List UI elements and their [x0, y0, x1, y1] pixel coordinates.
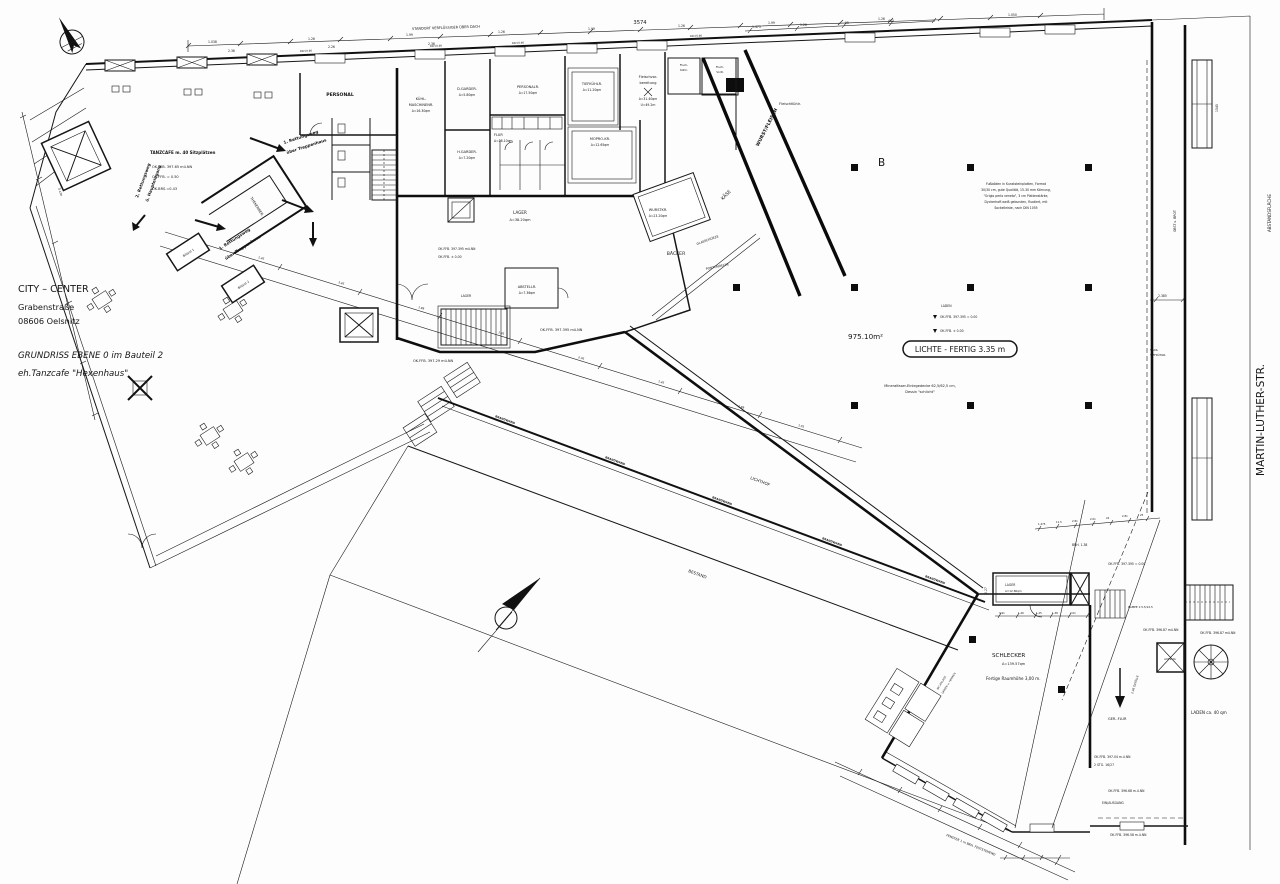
window-sill-label: BRH.0.90	[430, 44, 443, 48]
window-x	[105, 54, 277, 71]
wc-cluster	[865, 668, 941, 746]
dim-label: 1.99	[768, 21, 775, 25]
entrance-doors	[128, 284, 428, 548]
room-lager-s-area: A=12.80qm	[1005, 589, 1022, 593]
project-street: Grabenstraße	[18, 302, 74, 312]
skylight-x-icon	[128, 376, 152, 400]
window-sill-label: BRH.0.90	[300, 49, 313, 53]
room-dgarder-area: A=5.80qm	[459, 93, 476, 97]
ramp-stairs	[1095, 590, 1125, 618]
dim-label: 3.26	[338, 280, 345, 286]
dim-label: 2.26	[328, 45, 335, 49]
dim-label: 1.26	[498, 30, 505, 34]
room-abstellr-area: A=7.36qm	[519, 291, 536, 295]
zone-lichthof: LICHTHOF	[750, 475, 772, 487]
room-fleischkuehl: FleischKühlr.	[779, 102, 801, 106]
street-name: MARTIN-LUTHER-STR.	[1255, 364, 1267, 476]
dim-label: 2.36	[228, 49, 235, 53]
room-lager-big: LAGER	[513, 210, 527, 215]
dim-label: 2.01	[1090, 517, 1096, 521]
room-lager-big-area: A=38.20qm	[510, 218, 532, 222]
hall-area: 975.10m²	[848, 332, 883, 341]
dim-label: 1.038	[208, 40, 217, 44]
room-hgarder: H.GARDER.	[457, 150, 477, 154]
dim-label: 1.99	[418, 305, 425, 311]
zone-kaese: KÄSE	[719, 188, 732, 201]
dim-label: 1.26	[800, 23, 807, 27]
ponton-ceiling-label: PONTONDECKE	[705, 262, 729, 271]
dim-label: 2.27	[984, 587, 988, 594]
dim-total: 3574	[633, 20, 647, 26]
room-tiefkuehl-area: A=11.20qm	[583, 88, 602, 92]
skylight-shaft	[41, 121, 110, 190]
wurst-cold-room	[633, 173, 710, 242]
lichthof-bestand: BRANDWAND BRANDWAND BRANDWAND BRANDWAND …	[237, 398, 1012, 884]
room-kuehlmaschine2: MASCHINENR.	[409, 103, 434, 107]
level-label: OK.FFB. 396.87 mü.NN	[1200, 631, 1236, 635]
room-lager-small: LAGER	[461, 294, 472, 298]
dim-label: 25	[1140, 513, 1144, 517]
window-sill-label: BRH.0.90	[512, 41, 525, 45]
room-fleischvorr-sm: Flsch-	[716, 65, 724, 69]
floorplan-drawing: CITY – CENTER Grabenstraße 08606 Oelsnit…	[0, 0, 1280, 884]
level-label: OK.FFB. 397.395 mü.NN	[540, 328, 583, 332]
dim-label: 11.5	[1056, 520, 1062, 524]
room-dgarder: D.GARDER.	[457, 87, 477, 91]
billard-table-2: Billard 2	[222, 265, 265, 302]
room-personalr-area: A=17.50qm	[519, 91, 538, 95]
room-theke: THEKENBER.	[249, 196, 265, 218]
dim-label: 2.81	[1072, 519, 1078, 523]
dim-label: 2.81	[1122, 514, 1128, 518]
floorplan-sheet: CITY – CENTER Grabenstraße 08606 Oelsnit…	[0, 0, 1280, 884]
aufzug-box: AUFZUG	[1157, 643, 1184, 672]
window-sill-label: BRH.0.90	[690, 34, 703, 38]
room-abstellr: ABSTELLR.	[518, 285, 537, 289]
stairwell	[372, 150, 397, 200]
zone-wurstfleisch: WURST/FLEISCH	[755, 107, 779, 147]
ceiling-note: Mineralfaser-Einlegedecke 62,5/62,5 cm,	[884, 384, 955, 388]
elevator-shaft-2	[1071, 573, 1089, 605]
window	[893, 764, 1008, 832]
north-arrow-icon	[48, 12, 88, 59]
level-label: OK.FFB. 396.68 m.ü.NN	[1108, 789, 1145, 793]
room-flur: FLUR	[494, 133, 503, 137]
room-kuehlmaschine: KÜHL-	[416, 96, 427, 101]
survey-needle-icon	[478, 578, 540, 652]
escape-label: über Treppenhaus	[224, 234, 262, 261]
ceiling-note2: Dessin "schlicht"	[905, 390, 935, 394]
room-tanzcafe: TANZCAFE m. 40 Sitzplätzen	[150, 150, 215, 155]
drawing-subtitle: eh.Tanzcafe "Hexenhaus"	[18, 369, 128, 379]
room-mopro: MOPRO-KR.	[590, 137, 610, 141]
laden-note: LADEN ca. 40 qm	[1191, 710, 1227, 715]
site-dimension-chain: 1.26 3.26 1.99 1.26 2.36 1.26 1.99 1.05	[160, 232, 862, 462]
room-fleischkuehl-sm: Flsch-	[680, 63, 688, 67]
level-label: OK.FFB. 397.395 = 0.00	[1108, 562, 1145, 566]
aufzug-label: AUFZUG	[1164, 657, 1176, 661]
skylight-hatch	[448, 198, 474, 222]
dim-label: 1545	[1215, 104, 1219, 112]
straight-stair	[1185, 585, 1233, 620]
dim-label: 1.26	[1018, 611, 1024, 615]
axis-letter: B	[878, 157, 885, 169]
dim-label: 1.26	[308, 37, 315, 41]
level-label: OK.FFB. 397.29 mü.NN	[413, 359, 454, 363]
dim-label: 1.475	[752, 25, 761, 29]
zone-bestand: BESTAND	[688, 568, 708, 579]
stair-note: 2 STG. 16/27	[1094, 763, 1114, 767]
dim-label: 1.99	[588, 27, 595, 31]
schlecker-block: LAGER A=12.80qm 3.91 1.26 1.25 1.38 2.01…	[835, 492, 1236, 880]
laden-level-label: LADEN	[941, 304, 952, 308]
drawing-title: GRUNDRISS EBENE 0 im Bauteil 2	[18, 351, 163, 361]
room-sack-tk: SACK-	[1150, 348, 1158, 352]
tanzcafe-wing: PERSONAL TANZCAFE m. 40 Sitzplätzen OK.F…	[81, 68, 583, 568]
dim-label: 95	[845, 21, 849, 25]
north-facade-wall: BRH.0.90 BRH.0.90 BRH.0.90 BRH.0.90	[86, 20, 1152, 71]
glass-apron-label: GLASSCHÜRZE	[696, 233, 720, 246]
dim-label: 24	[1106, 516, 1110, 520]
service-rooms: KÜHL- MASCHINENR. A=16.30qm D.GARDER. A=…	[397, 52, 801, 352]
clearance-note: LICHTE - FERTIG 3.35 m	[915, 345, 1005, 354]
level-label: OK.FFB. 397.04 m.ü.NN	[1094, 755, 1131, 759]
title-block: CITY – CENTER Grabenstraße 08606 Oelsnit…	[18, 284, 163, 379]
dim-label: 1.38	[1052, 611, 1058, 615]
level-label: OK.BRS.=0.43	[152, 187, 177, 191]
dim-label: 1.25	[1036, 611, 1042, 615]
level-label: OK.FFB. 397.395 = 0.00	[940, 315, 977, 319]
room-fleischkuehl-sm2: Kühlr.	[680, 68, 688, 72]
zone-obst-brot: OBST u. BROT	[1173, 210, 1177, 232]
dim-label: 1.05	[798, 423, 805, 429]
dim-label: 1.050	[1008, 13, 1017, 17]
room-tiefkuehl: TIEFKÜHLR.	[581, 81, 602, 86]
dim-label: 1.26	[258, 255, 265, 261]
room-wurstkr-area: A=23.20qm	[649, 214, 668, 218]
floor-spec3: "Grigio perla veneto", 3 cm Plattenstärk…	[984, 194, 1049, 198]
shelving	[1192, 60, 1212, 520]
room-schlecker-area: A=139.57qm	[1002, 662, 1026, 666]
floor-spec2: 30/30 cm, gute Qualität, 15-30 mm Körnun…	[981, 188, 1051, 192]
room-personalr: PERSONALR.	[517, 85, 539, 89]
dim-label: 2.385	[1158, 294, 1167, 298]
project-title: CITY – CENTER	[18, 284, 89, 295]
floor-spec4: Dyckerhoff-weiß gebunden, fluatiert, mit	[985, 200, 1049, 204]
slope-label: 2.46 GEFÄLLE	[1129, 674, 1139, 694]
room-hgarder-area: A=7.20qm	[459, 156, 476, 160]
elevator-shaft	[340, 308, 378, 342]
room-fleischvorr-sm2: VorR.	[716, 70, 723, 74]
spiral-stair	[1194, 645, 1228, 679]
floor-spec: Fußböden in Kunststeinplatten, Format	[986, 182, 1047, 186]
room-fleischvor: Fleischvor-	[639, 75, 659, 79]
dim-label: BRH. 1.38	[1072, 543, 1087, 547]
room-kuehlmaschine-area: A=16.30qm	[412, 109, 431, 113]
room-personal: PERSONAL	[326, 92, 354, 98]
window-note: FENSTER 1 m BRH. FESTSTEHEND	[946, 833, 997, 857]
dim-label: 2.01	[1070, 611, 1076, 615]
street-band: 2.385 1545 OBST u. BROT SACK- TIEFKÜHLR.…	[1149, 16, 1272, 850]
room-gerflur: GER.-FLUR	[1108, 717, 1127, 721]
room-flur-area: A=28.10qm	[494, 139, 513, 143]
zone-baecker: BÄCKER	[667, 250, 686, 257]
roof-note: STANDORT VERFLÜSSIGER ÜBER DACH	[412, 24, 481, 31]
dim-label: 1.99	[406, 33, 413, 37]
dim-label: 1.26	[678, 24, 685, 28]
dim-label: 463	[888, 19, 894, 23]
ramp-label: RAMPE 1:5,5/12,5	[1128, 605, 1153, 609]
room-fleischvor-umfang: U=49.2m	[641, 103, 656, 107]
level-label: OK.FFB. ± 0.00	[940, 329, 964, 333]
dim-label: 1.26	[878, 17, 885, 21]
dim-label: 3.91	[999, 611, 1005, 615]
room-lager-s: LAGER	[1005, 583, 1016, 587]
level-label: OK.FFB. ± 0.00	[438, 255, 462, 259]
room-schlecker: SCHLECKER	[992, 653, 1025, 659]
level-label: OK.FFB. 396.58 m.ü.NN	[1110, 833, 1147, 837]
room-height-note: Fertige Raumhöhe 3,00 m.	[986, 676, 1041, 681]
room-fleischvor-area: A=31.40qm	[639, 97, 658, 101]
level-label: OK.FFB. 397.395 mü.NN	[438, 247, 476, 251]
level-label: OK.FFB. 396.87 mü.NN	[1143, 628, 1179, 632]
setback-label: ABSTANDSFLÄCHE	[1267, 194, 1272, 232]
room-mopro-area: A=12.65qm	[591, 143, 610, 147]
dim-label: 1.26	[658, 379, 665, 385]
floor-spec5: Sockelleiste, nach DIN 1055	[994, 206, 1037, 210]
dim-label: 1.475	[1038, 522, 1046, 526]
room-sack-tk2: TIEFKÜHLR.	[1149, 352, 1166, 357]
room-wurstkr: WURSTKR.	[649, 208, 668, 212]
room-fleischvor2: bereitung	[640, 81, 657, 85]
entrance-note: EIN/AUSGANG	[1102, 801, 1124, 805]
dim-label: 1.26	[498, 330, 505, 336]
